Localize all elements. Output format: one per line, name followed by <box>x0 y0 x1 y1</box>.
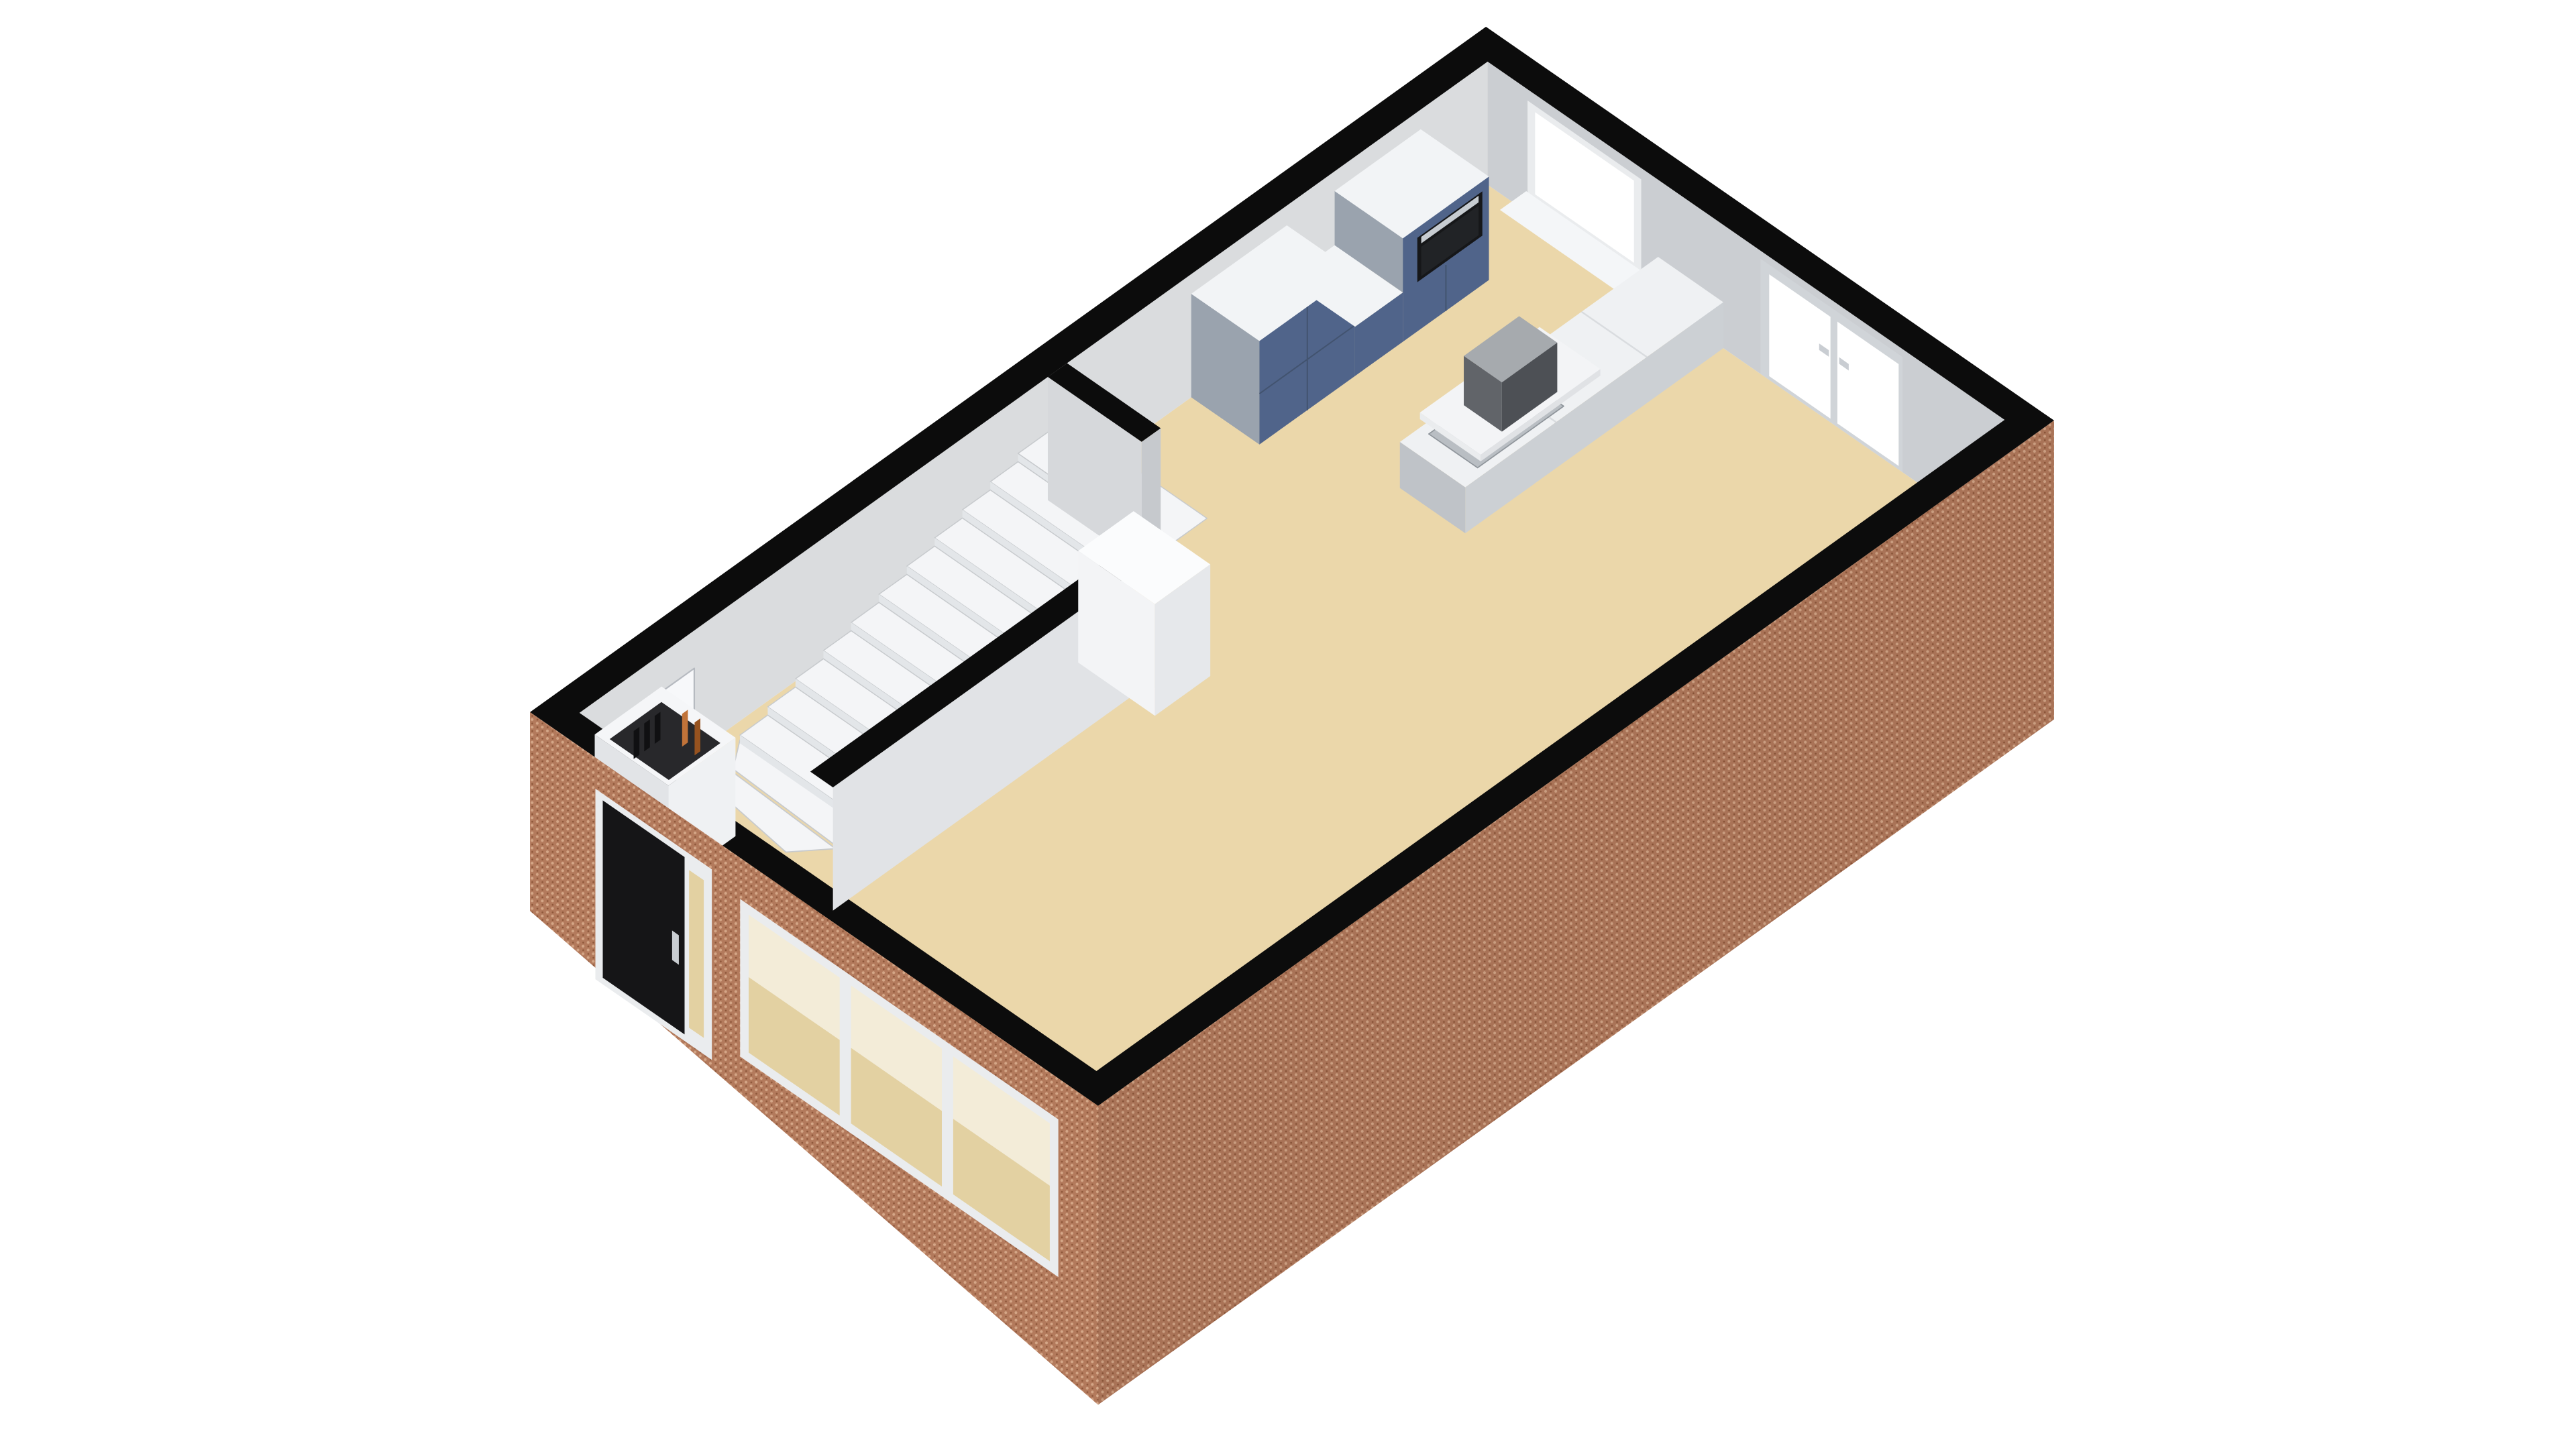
meter-cupboard-pipe <box>694 718 700 755</box>
front-door-sidelight <box>689 870 704 1038</box>
floorplan-canvas <box>0 0 2576 1450</box>
meter-cupboard-contents <box>644 720 650 752</box>
meter-cupboard-contents <box>655 712 661 744</box>
floorplan-3d-render <box>0 0 2576 1450</box>
meter-cupboard-contents <box>634 727 640 759</box>
meter-cupboard-pipe <box>682 710 688 746</box>
front-door-handle <box>672 930 679 964</box>
